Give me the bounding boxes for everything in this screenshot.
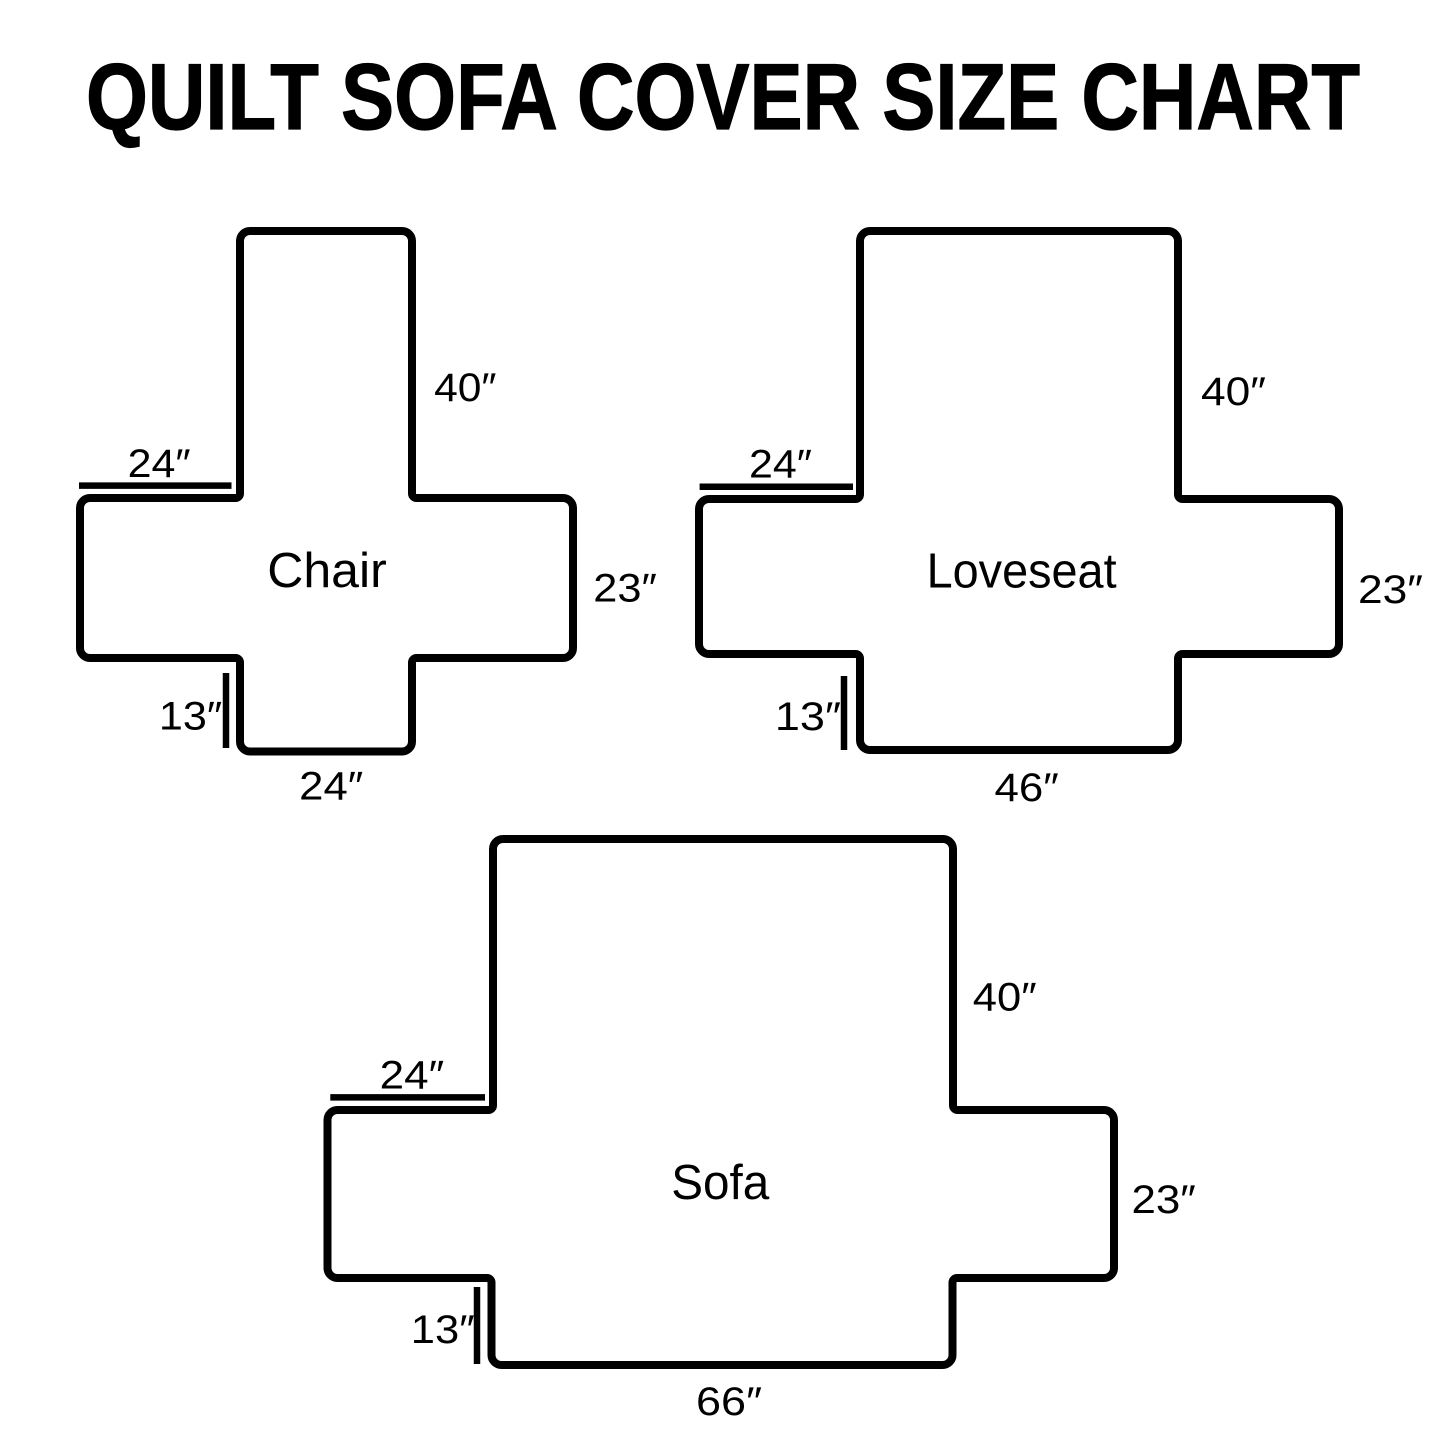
svg-text:66″: 66″ <box>696 1380 762 1424</box>
svg-text:23″: 23″ <box>1132 1178 1196 1222</box>
svg-text:24″: 24″ <box>749 443 812 487</box>
svg-text:13″: 13″ <box>159 695 222 739</box>
svg-text:46″: 46″ <box>995 766 1059 810</box>
svg-text:40″: 40″ <box>973 975 1037 1019</box>
svg-text:40″: 40″ <box>434 366 496 410</box>
svg-text:Chair: Chair <box>267 543 387 598</box>
svg-text:Sofa: Sofa <box>671 1155 769 1210</box>
svg-text:13″: 13″ <box>775 695 841 739</box>
svg-text:13″: 13″ <box>411 1308 475 1352</box>
svg-text:QUILT SOFA COVER SIZE CHART: QUILT SOFA COVER SIZE CHART <box>86 44 1360 149</box>
svg-text:23″: 23″ <box>593 566 657 610</box>
svg-text:24″: 24″ <box>380 1054 445 1098</box>
svg-text:Loveseat: Loveseat <box>927 544 1117 599</box>
svg-text:23″: 23″ <box>1358 568 1423 612</box>
svg-text:24″: 24″ <box>299 765 363 809</box>
svg-text:40″: 40″ <box>1201 370 1266 414</box>
svg-text:24″: 24″ <box>128 442 191 486</box>
